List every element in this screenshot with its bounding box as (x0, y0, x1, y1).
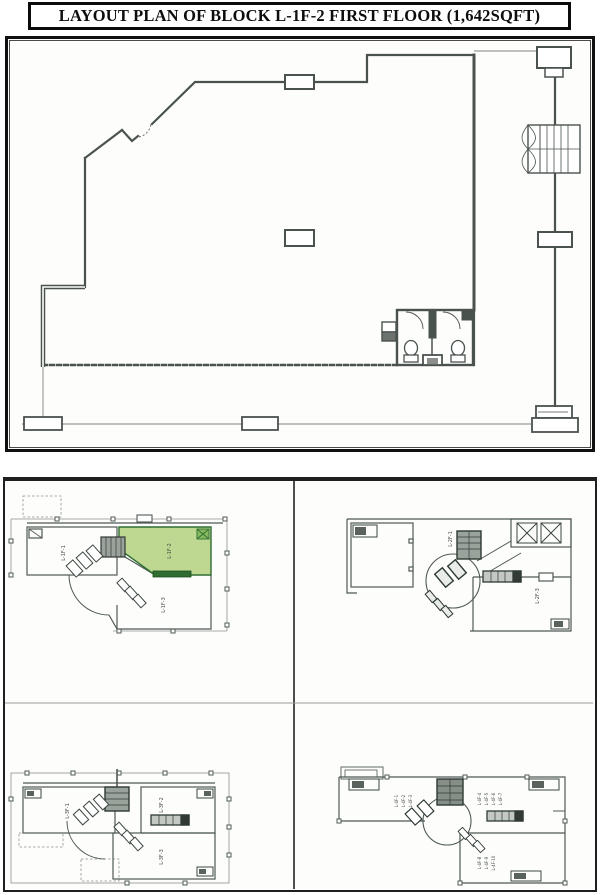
wc-icon-right (451, 341, 465, 363)
plan-d-core-lift-icon (437, 779, 463, 805)
plan-a-unit-left-label: L-1F-1 (61, 545, 67, 561)
svg-text:L-4F-7: L-4F-7 (498, 792, 503, 805)
plan-d-room-left-labels: L-4F-1 L-4F-2 L-4F-3 (394, 794, 413, 807)
key-plan-panel: L-1F-1 L-1F-2 L-1F-3 (3, 477, 597, 892)
plan-b-entry-icon (353, 525, 377, 537)
plan-b-core-stair-icon (425, 560, 466, 618)
plan-b-lift-icon (457, 531, 481, 559)
key-plan-drawing: L-1F-1 L-1F-2 L-1F-3 (5, 481, 593, 889)
sink-icon (382, 322, 396, 341)
entrance-door-arc-icon (139, 123, 151, 137)
highlighted-unit-corner-icon (197, 529, 209, 539)
wc-icon-left (404, 341, 418, 363)
svg-text:L-4F-4: L-4F-4 (477, 792, 482, 805)
svg-text:L-4F-10: L-4F-10 (491, 855, 496, 870)
column-top-right (537, 47, 571, 77)
svg-text:L-4F-5: L-4F-5 (484, 792, 489, 805)
key-plan-c: L-3F-1 L-3F-2 L-3F-3 (9, 769, 231, 885)
plan-c-core-lift-icon (105, 787, 129, 811)
plan-c-unit-left-label: L-3F-1 (65, 803, 71, 819)
plan-d-travelator-icon (487, 811, 523, 821)
plan-a-unit-highlight-label: L-1F-2 (167, 543, 173, 559)
main-floor-plan-drawing (10, 41, 590, 447)
key-plan-d: L-4F-1 L-4F-2 L-4F-3 L-4F-4 L-4F-5 L-4F-… (337, 767, 567, 885)
right-service-chain (522, 47, 580, 407)
column-mid-right (538, 232, 572, 247)
plan-d-room-bottom-labels: L-4F-8 L-4F-9 L-4F-10 (477, 855, 496, 870)
highlighted-unit-shopfront-bar (153, 571, 191, 577)
plan-d-room-right-labels: L-4F-4 L-4F-5 L-4F-6 L-4F-7 (477, 792, 503, 805)
left-step-wall (43, 287, 85, 367)
scanned-layout-plan-page: LAYOUT PLAN OF BLOCK L-1F-2 FIRST FLOOR … (0, 0, 600, 895)
escalator-cross-icon (517, 523, 561, 543)
unit-walls (43, 55, 474, 365)
main-floor-plan-frame (5, 36, 595, 452)
key-plan-a: L-1F-1 L-1F-2 L-1F-3 (9, 496, 229, 633)
plan-b-unit-right-label: L-2F-3 (535, 588, 541, 604)
toilet-corner-block (462, 310, 473, 320)
svg-text:L-4F-8: L-4F-8 (477, 856, 482, 869)
wall-columns (285, 75, 314, 246)
title-bar: LAYOUT PLAN OF BLOCK L-1F-2 FIRST FLOOR … (28, 2, 571, 30)
plan-c-unit-right-label: L-3F-2 (159, 797, 165, 813)
plan-b-unit-core-label: L-2F-1 (448, 531, 454, 547)
plan-a-core-lift-icon (101, 537, 125, 557)
page-title: LAYOUT PLAN OF BLOCK L-1F-2 FIRST FLOOR … (59, 6, 540, 26)
svg-text:L-4F-2: L-4F-2 (401, 794, 406, 807)
plan-b-travelator-icon (483, 571, 521, 582)
toilet-area (382, 310, 473, 365)
plan-b-corner-icon (551, 619, 569, 629)
lift-shaft-icon (522, 125, 580, 173)
svg-text:L-4F-1: L-4F-1 (394, 794, 399, 807)
plan-a-unit-bottom-label: L-1F-3 (161, 597, 167, 613)
plan-c-travelator-icon (151, 815, 189, 825)
svg-text:L-4F-3: L-4F-3 (408, 794, 413, 807)
plan-c-unit-bottom-label: L-3F-3 (159, 849, 165, 865)
toilet-door-arc-left (406, 312, 423, 329)
toilet-door-arc-right (443, 312, 460, 329)
key-plan-b: L-2F-1 L-2F-3 (347, 519, 571, 631)
toilet-divider (429, 310, 436, 338)
svg-text:L-4F-6: L-4F-6 (491, 792, 496, 805)
svg-text:L-4F-9: L-4F-9 (484, 856, 489, 869)
